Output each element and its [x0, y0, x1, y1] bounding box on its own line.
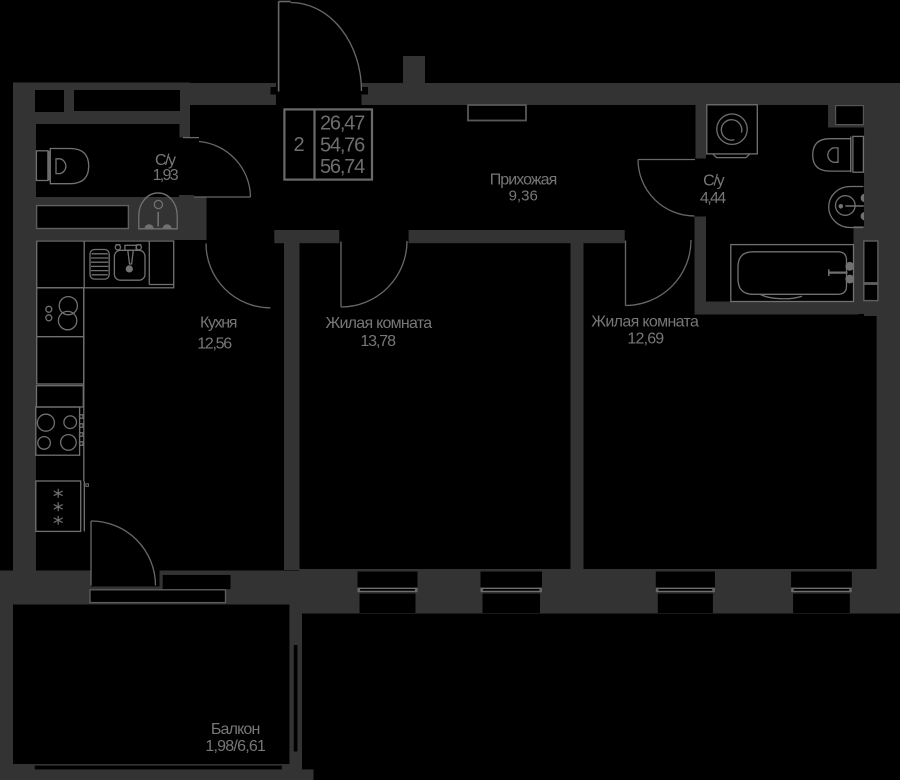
svg-text:54,76: 54,76: [320, 135, 365, 157]
svg-text:Кухня: Кухня: [200, 314, 238, 331]
svg-text:12,69: 12,69: [627, 330, 664, 347]
svg-text:12,56: 12,56: [197, 335, 232, 352]
svg-text:1,98/6,61: 1,98/6,61: [205, 738, 266, 755]
svg-text:Жилая комната: Жилая комната: [591, 313, 699, 330]
svg-text:9,36: 9,36: [509, 188, 538, 205]
svg-text:2: 2: [293, 134, 304, 156]
svg-text:С/у: С/у: [703, 173, 725, 190]
svg-text:56,74: 56,74: [320, 156, 365, 178]
svg-text:Прихожая: Прихожая: [490, 172, 558, 189]
svg-text:Жилая комната: Жилая комната: [325, 315, 432, 332]
svg-text:26,47: 26,47: [320, 112, 365, 134]
svg-text:13,78: 13,78: [360, 333, 396, 350]
svg-text:4,44: 4,44: [700, 190, 726, 207]
svg-text:1,93: 1,93: [153, 167, 179, 184]
svg-text:Балкон: Балкон: [211, 721, 260, 738]
